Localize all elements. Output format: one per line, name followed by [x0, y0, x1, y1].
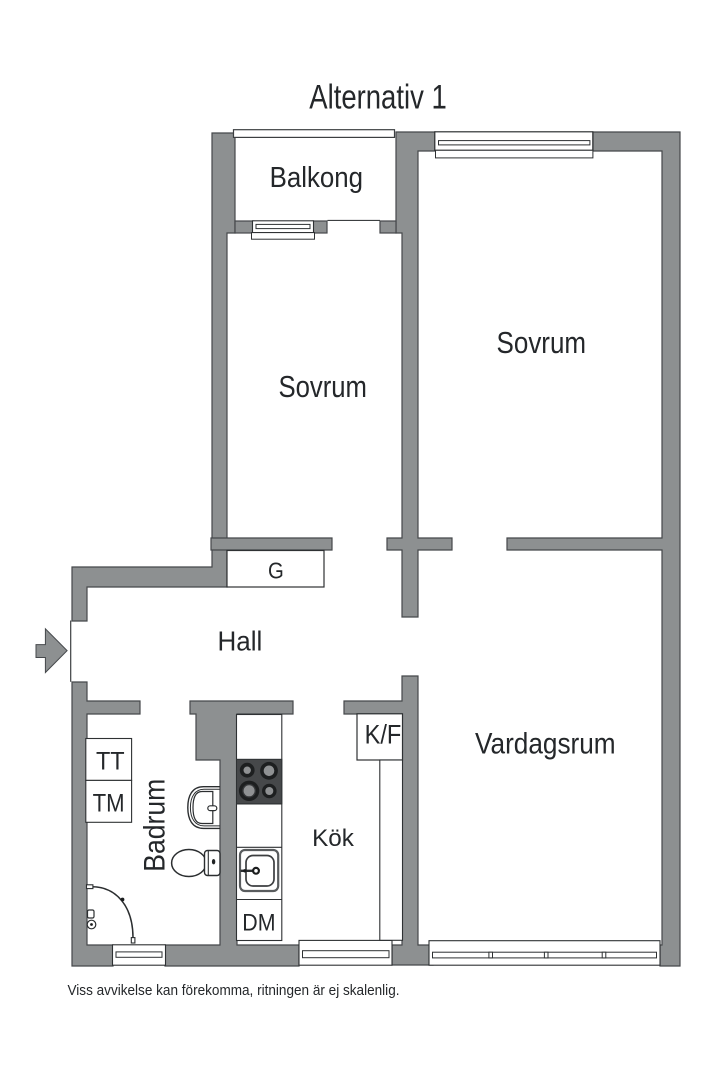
svg-text:Badrum: Badrum [139, 779, 172, 872]
svg-text:G: G [268, 558, 284, 584]
svg-text:DM: DM [242, 909, 275, 936]
svg-text:TT: TT [96, 749, 125, 776]
svg-text:Sovrum: Sovrum [278, 370, 367, 404]
svg-text:Hall: Hall [218, 626, 263, 657]
svg-text:Sovrum: Sovrum [497, 326, 587, 360]
svg-text:Balkong: Balkong [270, 162, 363, 194]
svg-text:Vardagsrum: Vardagsrum [475, 727, 616, 760]
svg-text:Viss avvikelse kan förekomma,: Viss avvikelse kan förekomma, ritningen … [68, 982, 400, 999]
svg-text:Alternativ 1: Alternativ 1 [309, 78, 447, 116]
svg-text:Kök: Kök [312, 825, 355, 852]
svg-text:K/F: K/F [365, 720, 402, 750]
svg-text:TM: TM [93, 791, 125, 818]
